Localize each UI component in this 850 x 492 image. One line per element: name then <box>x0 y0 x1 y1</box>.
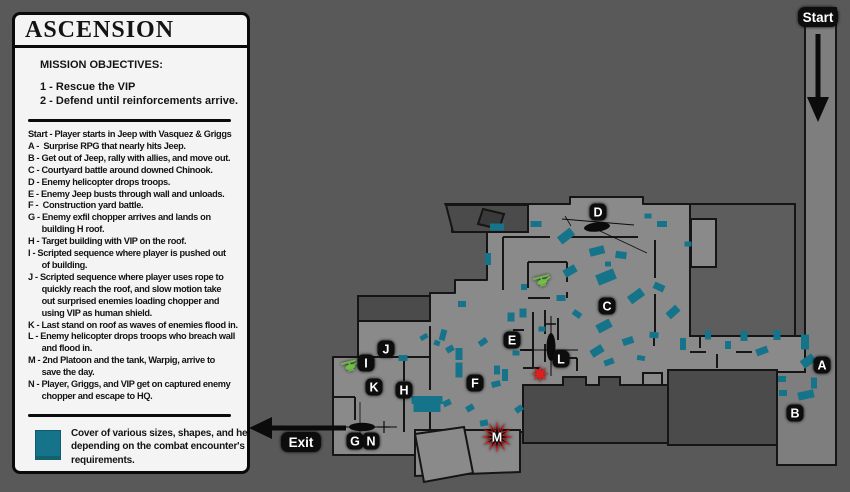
cover-block <box>485 253 491 265</box>
svg-text:Start: Start <box>803 10 834 25</box>
svg-text:F: F <box>471 377 479 391</box>
small-room-passage <box>643 373 662 385</box>
page-title: ASCENSION <box>25 17 237 44</box>
legend-note-line: Cover of various sizes, shapes, and heig… <box>71 427 250 441</box>
marker-c: C <box>599 298 616 315</box>
mission-line: chopper and escape to HQ. <box>28 391 240 403</box>
explosion-star-icon <box>531 365 549 383</box>
cover-block <box>725 341 731 349</box>
mission-line: using VIP as human shield. <box>28 308 240 320</box>
cover-block <box>539 327 546 332</box>
legend-note-line: depending on the combat encounter's <box>71 440 250 454</box>
mission-line: B - Get out of Jeep, rally with allies, … <box>28 153 240 165</box>
svg-text:C: C <box>602 300 611 314</box>
mission-line: out surprised enemies loading chopper an… <box>28 296 240 308</box>
marker-l: L <box>553 351 570 368</box>
building-bottom-right <box>668 370 777 445</box>
cover-block <box>513 351 520 356</box>
mission-line: F - Construction yard battle. <box>28 200 240 212</box>
cover-block <box>705 331 711 340</box>
svg-text:G: G <box>350 435 360 449</box>
objectives-heading: MISSION OBJECTIVES: <box>40 59 247 71</box>
marker-e: E <box>504 332 521 349</box>
svg-text:N: N <box>366 435 375 449</box>
mission-line: I - Scripted sequence where player is pu… <box>28 248 240 260</box>
panel-title-bar: ASCENSION <box>15 15 247 48</box>
start-pill: Start <box>798 7 838 27</box>
marker-h: H <box>396 382 413 399</box>
exit-pill: Exit <box>281 432 321 452</box>
cover-block <box>811 378 817 389</box>
building-bottom-center <box>523 377 668 443</box>
cover-block <box>494 366 500 375</box>
svg-text:J: J <box>383 343 390 357</box>
svg-text:L: L <box>557 353 565 367</box>
marker-i: I <box>358 355 375 372</box>
objective-line: 1 - Rescue the VIP <box>40 80 247 94</box>
mission-line: building H roof. <box>28 224 240 236</box>
legend: Cover of various sizes, shapes, and heig… <box>35 427 247 468</box>
legend-note: Cover of various sizes, shapes, and heig… <box>71 427 250 468</box>
cover-block <box>645 214 652 219</box>
cover-block <box>605 262 611 267</box>
cover-legend-swatch <box>35 430 61 460</box>
cover-block <box>520 309 527 318</box>
mission-line: M - 2nd Platoon and the tank, Warpig, ar… <box>28 355 240 367</box>
svg-text:E: E <box>508 334 516 348</box>
cover-block <box>458 301 466 307</box>
mission-line: E - Enemy Jeep busts through wall and un… <box>28 189 240 201</box>
cover-block <box>456 363 463 378</box>
mission-line: quickly reach the roof, and slow motion … <box>28 284 240 296</box>
cover-block <box>779 390 787 396</box>
marker-m-label: M <box>492 431 502 445</box>
mission-objectives: MISSION OBJECTIVES: 1 - Rescue the VIP 2… <box>40 59 247 108</box>
mission-line: L - Enemy helicopter drops troops who br… <box>28 331 240 343</box>
marker-b: B <box>787 405 804 422</box>
svg-text:A: A <box>817 359 826 373</box>
level-map-page: MABCDEFGHIJKLNStartExit ASCENSION MISSIO… <box>0 0 850 492</box>
mission-line: K - Last stand on roof as waves of enemi… <box>28 320 240 332</box>
svg-text:B: B <box>790 407 799 421</box>
mission-line: save the day. <box>28 367 240 379</box>
marker-n: N <box>363 433 380 450</box>
mission-line: A - Surprise RPG that nearly hits Jeep. <box>28 141 240 153</box>
mission-line: D - Enemy helicopter drops troops. <box>28 177 240 189</box>
cover-block <box>741 331 748 341</box>
cover-block <box>685 242 692 247</box>
mission-line: Start - Player starts in Jeep with Vasqu… <box>28 129 240 141</box>
svg-text:Exit: Exit <box>289 435 314 450</box>
mission-line: H - Target building with VIP on the roof… <box>28 236 240 248</box>
cover-block <box>456 348 463 360</box>
cover-block <box>801 335 809 350</box>
tilted-platform <box>415 427 473 482</box>
cover-block <box>531 221 542 227</box>
cover-block <box>521 284 527 290</box>
building-right-room <box>691 219 716 267</box>
cover-block <box>778 376 786 382</box>
marker-k: K <box>366 379 383 396</box>
cover-block <box>657 221 667 227</box>
cover-block <box>399 355 408 361</box>
mission-line: and flood in. <box>28 343 240 355</box>
divider <box>28 414 231 417</box>
cover-block <box>414 404 441 412</box>
cover-block <box>649 332 658 339</box>
mission-line: G - Enemy exfil chopper arrives and land… <box>28 212 240 224</box>
marker-d: D <box>590 204 607 221</box>
marker-a: A <box>814 357 831 374</box>
cover-block <box>774 330 781 340</box>
marker-j: J <box>378 341 395 358</box>
cover-block <box>557 295 566 301</box>
objective-line: 2 - Defend until reinforcements arrive. <box>40 94 247 108</box>
svg-text:D: D <box>593 206 602 220</box>
marker-f: F <box>467 375 484 392</box>
mission-line: C - Courtyard battle around downed Chino… <box>28 165 240 177</box>
cover-block <box>680 338 686 350</box>
cover-block <box>412 396 443 404</box>
svg-text:K: K <box>369 381 378 395</box>
svg-text:I: I <box>364 357 367 371</box>
marker-g: G <box>347 433 364 450</box>
cover-block <box>508 313 515 322</box>
building-above-j <box>358 296 430 321</box>
mission-line: of building. <box>28 260 240 272</box>
legend-note-line: requirements. <box>71 454 250 468</box>
mission-brief-panel: ASCENSION MISSION OBJECTIVES: 1 - Rescue… <box>12 12 250 474</box>
svg-text:H: H <box>399 384 408 398</box>
mission-line: J - Scripted sequence where player uses … <box>28 272 240 284</box>
divider <box>28 119 231 122</box>
mission-line: N - Player, Griggs, and VIP get on captu… <box>28 379 240 391</box>
cover-block <box>490 224 504 231</box>
mission-key-list: Start - Player starts in Jeep with Vasqu… <box>28 129 240 403</box>
cover-block <box>502 369 508 381</box>
